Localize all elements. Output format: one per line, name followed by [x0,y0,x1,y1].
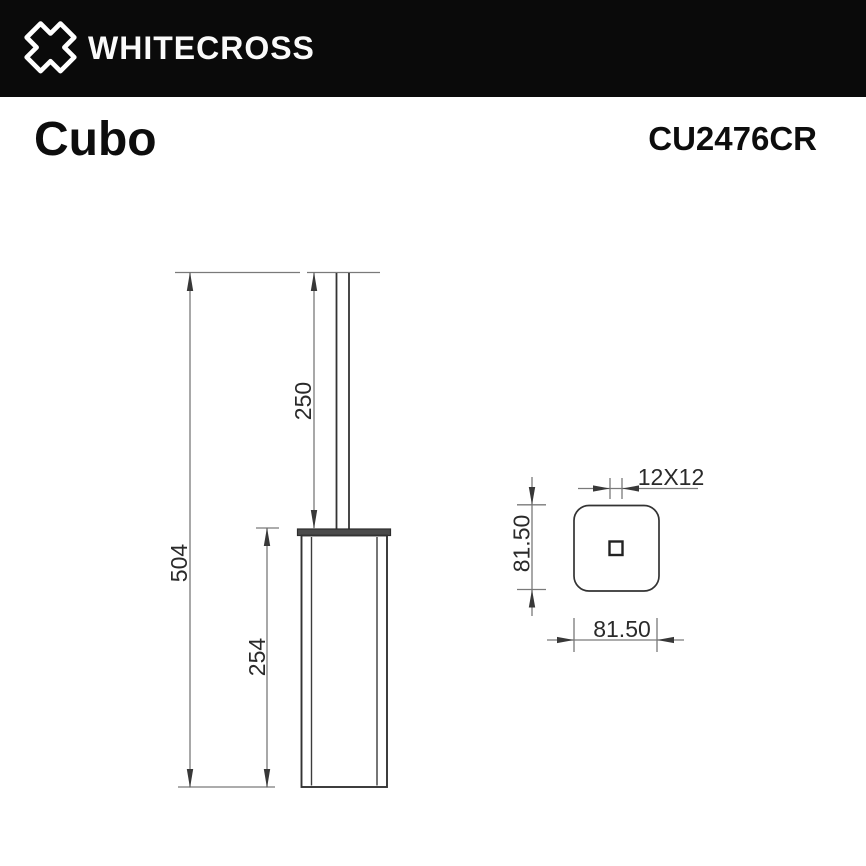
handle-cross-section [610,542,623,556]
top-view: 12X12 81.50 81.50 [509,464,705,652]
dim-label-body-height: 254 [244,638,270,677]
brush-handle [337,273,350,529]
dim-label-width: 81.50 [593,616,651,642]
dim-label-handle-height: 250 [290,382,316,420]
holder-cap [298,529,391,536]
holder-body [302,536,388,788]
dim-label-total-height: 504 [166,544,192,583]
dim-label-depth: 81.50 [509,515,535,573]
front-view: 504 250 254 [166,272,391,788]
spec-sheet-page: WHITECROSS Cubo CU2476CR [0,0,866,866]
technical-drawing: 504 250 254 [0,0,866,866]
dim-label-handle-section: 12X12 [638,464,705,490]
